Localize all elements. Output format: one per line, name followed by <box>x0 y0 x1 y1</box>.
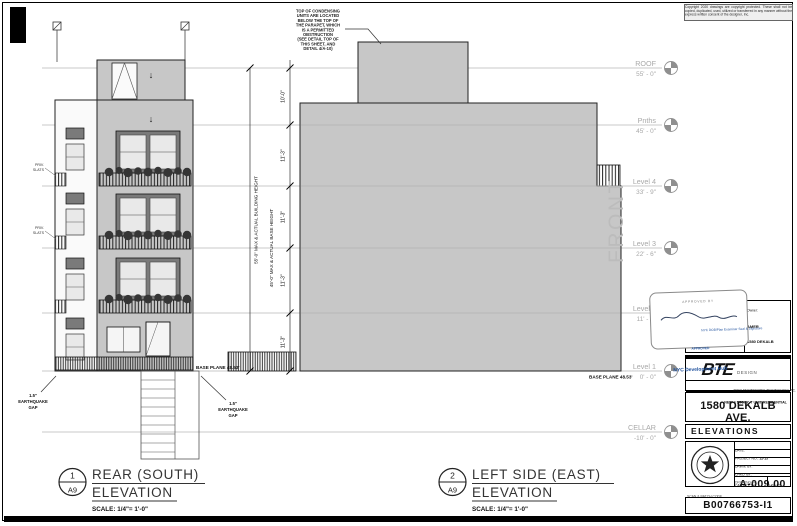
owner-name: 1580 DEKALB <box>747 340 774 344</box>
level-name: Level 3 <box>633 239 656 248</box>
drawing-sheet: ROOF 55' - 0" Pnths 45' - 0" Level 4 33'… <box>0 0 797 526</box>
window <box>116 258 180 300</box>
level-labels: ROOF 55' - 0" Pnths 45' - 0" Level 4 33'… <box>628 59 657 442</box>
base-height-dim: 45'-0" MAX & ACTUAL BASE HEIGHT <box>269 209 274 288</box>
copyright-notice: Copyright 2020 drawings are copyright pr… <box>684 4 793 21</box>
slat-rail <box>55 236 66 249</box>
nyc-development-hub-label: NYC Development Hub <box>674 366 728 373</box>
titleblock-seal-box: DATE: PROJECT NO.: 12-15 DRWN. BY: CHKD.… <box>685 441 791 487</box>
bulkhead-door <box>112 63 137 99</box>
owner-label: Owner: <box>747 309 758 313</box>
level-elev: 0' - 0" <box>640 374 656 381</box>
building-height-dim: 55'-0" MAX & ACTUAL BUILDING HEIGHT <box>254 176 259 264</box>
level-name: Level 4 <box>633 177 656 186</box>
date-label: DATE: <box>735 449 745 453</box>
cellar-stair-outline <box>141 371 199 459</box>
svg-text:PRIV.: PRIV. <box>35 163 44 167</box>
privacy-slat-note: PRIV. SLATS PRIV. SLATS <box>33 163 56 239</box>
east-elevation: FRONT <box>228 42 628 371</box>
project-no-label: PROJECT NO.: <box>735 457 758 461</box>
copyright-text: Copyright 2020 drawings are copyright pr… <box>685 5 792 17</box>
view-title-line2: ELEVATION <box>92 485 173 500</box>
level-elev: 45' - 0" <box>636 128 656 135</box>
vent-arrow-icon: ↓ <box>149 114 154 124</box>
base-plane-label: BASE PLANE 48.53' <box>196 365 239 370</box>
scan-code: B00766753-I1 <box>685 497 791 514</box>
svg-text:GAP: GAP <box>228 413 237 418</box>
view-title-line1: LEFT SIDE (EAST) <box>472 467 601 482</box>
view-scale: SCALE: 1/4"= 1'-0" <box>92 506 148 513</box>
titleblock-project-box: NEW 4 STORY, 7 UNIT RESIDENTIAL 1580 DEK… <box>685 392 791 422</box>
sheet-title: ELEVATIONS <box>686 425 790 438</box>
rear-bulkhead <box>97 60 185 100</box>
segment-dim: 11'-3" <box>281 274 287 287</box>
level-elev: 22' - 6" <box>636 251 656 258</box>
project-type: NEW 4 STORY, 7 UNIT RESIDENTIAL <box>724 401 787 405</box>
window <box>66 258 84 300</box>
level-name: Pnths <box>638 116 657 125</box>
east-bulkhead <box>358 42 468 103</box>
window <box>116 131 180 173</box>
view-title-line2: ELEVATION <box>472 485 553 500</box>
svg-text:PRIV.: PRIV. <box>35 226 44 230</box>
slat-rail <box>55 300 66 313</box>
cad-file-label: CAD FILE No. <box>735 484 756 486</box>
level-elev: 33' - 9" <box>636 189 656 196</box>
svg-text:1.5": 1.5" <box>29 393 37 398</box>
level-name: CELLAR <box>628 423 656 432</box>
front-label: FRONT <box>605 178 628 263</box>
base-hatch <box>55 357 193 370</box>
rear-south-elevation: ↓ ↓ <box>53 22 199 459</box>
dob-approval-stamp: APPROVED BY NYC DOB/Plan Examiner Seal &… <box>649 289 749 349</box>
east-mass <box>300 103 621 371</box>
architect-seal <box>688 444 732 486</box>
segment-dim: 11'-3" <box>281 336 287 349</box>
rear-left-bay <box>55 100 97 371</box>
vent-arrow-icon: ↓ <box>149 70 154 80</box>
view-number: 1 <box>70 471 75 481</box>
view-title-east: 2 A9 LEFT SIDE (EAST) ELEVATION SCALE: 1… <box>439 467 614 513</box>
stamp-line2: APPROVED <box>691 347 709 351</box>
drawn-by-label: DRWN. BY: <box>735 465 752 469</box>
svg-text:EARTHQUAKE: EARTHQUAKE <box>218 407 248 412</box>
svg-text:1.5": 1.5" <box>229 401 237 406</box>
window <box>116 194 180 236</box>
level-datum-symbols <box>665 62 678 439</box>
view-title-line1: REAR (SOUTH) <box>92 467 199 482</box>
level-elev: -10' - 0" <box>634 435 656 442</box>
window <box>66 318 84 360</box>
segment-dim: 11'-3" <box>281 211 287 224</box>
bottom-border-band <box>4 516 793 522</box>
segment-dim: 11'-3" <box>281 149 287 162</box>
elevation-drawing: ROOF 55' - 0" Pnths 45' - 0" Level 4 33'… <box>0 0 797 526</box>
entry-door <box>146 322 170 356</box>
level-elev: 55' - 0" <box>636 71 656 78</box>
slat-rail <box>55 173 66 186</box>
titleblock-sheet-title-box: ELEVATIONS <box>685 424 791 439</box>
svg-text:SLATS: SLATS <box>33 231 45 235</box>
project-no: 12-15 <box>759 457 768 461</box>
page-count: 9 OF 12 <box>768 484 780 486</box>
segment-dim: 10'-0" <box>281 90 287 103</box>
level-name: Level 1 <box>633 362 656 371</box>
window <box>66 193 84 235</box>
titleblock-fields: DATE: PROJECT NO.: 12-15 DRWN. BY: CHKD.… <box>734 442 790 486</box>
window <box>66 128 84 170</box>
view-sheet-ref: A9 <box>68 486 77 495</box>
svg-text:EARTHQUAKE: EARTHQUAKE <box>18 399 48 404</box>
level-name: ROOF <box>635 59 656 68</box>
view-sheet-ref: A9 <box>448 486 457 495</box>
earthquake-gap-note: 1.5" EARTHQUAKE GAP 1.5" EARTHQUAKE GAP <box>18 376 248 418</box>
approved-by-label: APPROVED BY <box>682 299 714 304</box>
height-dimensions: 55'-0" MAX & ACTUAL BUILDING HEIGHT 45'-… <box>247 60 294 375</box>
view-scale: SCALE: 1/4"= 1'-0" <box>472 506 528 513</box>
view-title-rear: 1 A9 REAR (SOUTH) ELEVATION SCALE: 1/4"=… <box>59 467 205 513</box>
view-number: 2 <box>450 471 455 481</box>
base-plane-label: BASE PLANE 48.53' <box>589 375 632 380</box>
svg-text:SLATS: SLATS <box>33 168 45 172</box>
svg-text:GAP: GAP <box>28 405 37 410</box>
svg-text:DETAIL 4/A-10): DETAIL 4/A-10) <box>303 46 333 51</box>
